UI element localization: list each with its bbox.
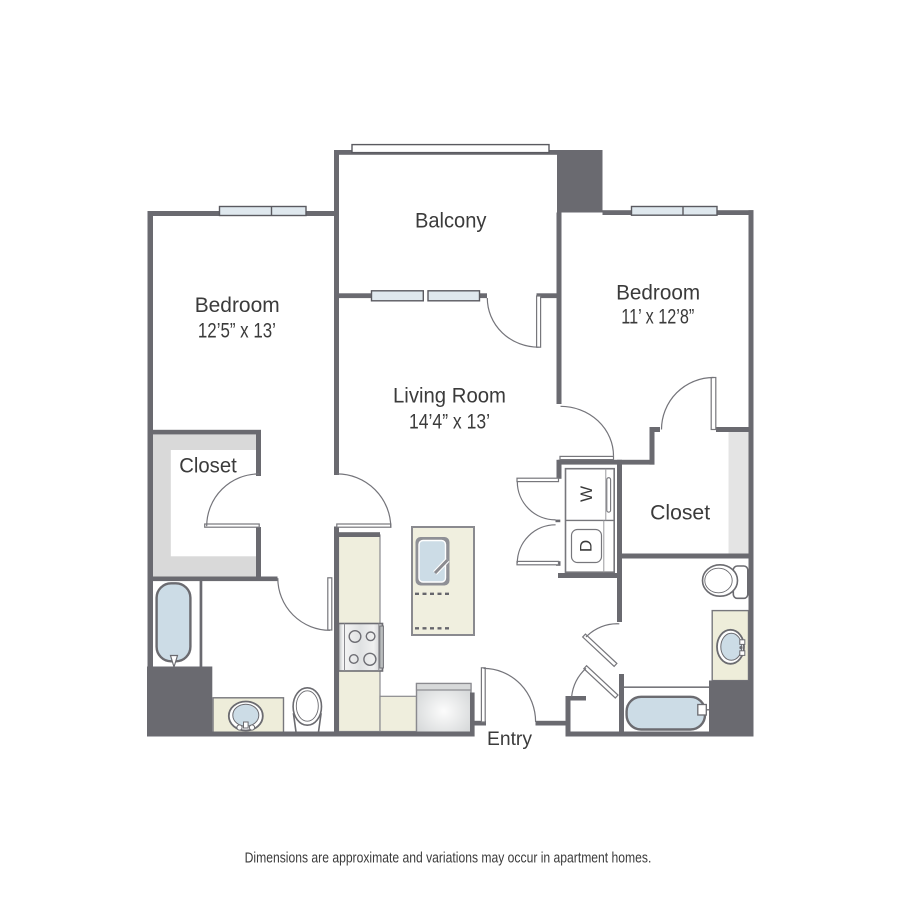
svg-text:Dimensions are approximate and: Dimensions are approximate and variation…	[245, 851, 652, 867]
svg-text:Bedroom: Bedroom	[616, 282, 700, 305]
svg-text:Bedroom: Bedroom	[195, 294, 280, 317]
svg-text:Entry: Entry	[487, 729, 532, 750]
svg-text:Closet: Closet	[179, 454, 237, 478]
svg-text:12’5” x 13’: 12’5” x 13’	[198, 320, 276, 343]
svg-text:Living Room: Living Room	[393, 385, 506, 408]
svg-text:Closet: Closet	[650, 501, 710, 525]
svg-text:14’4” x 13’: 14’4” x 13’	[409, 411, 490, 434]
svg-text:D: D	[577, 540, 596, 552]
svg-text:11’ x 12’8”: 11’ x 12’8”	[621, 306, 694, 329]
svg-text:Balcony: Balcony	[415, 210, 487, 233]
svg-text:W: W	[577, 486, 596, 502]
